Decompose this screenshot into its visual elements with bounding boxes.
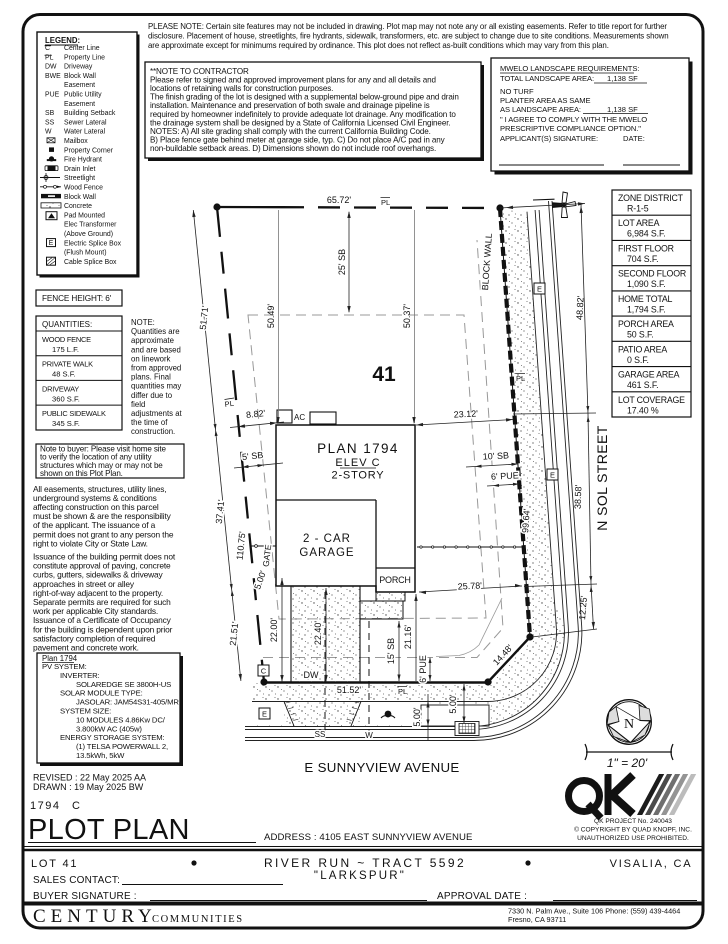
svg-text:5.00': 5.00' [448,694,458,714]
svg-text:" I AGREE TO COMPLY WITH THE M: " I AGREE TO COMPLY WITH THE MWELO [500,115,647,124]
svg-text:360 S.F.: 360 S.F. [52,394,80,403]
svg-text:25' SB: 25' SB [337,249,347,275]
svg-text:PATIO AREA: PATIO AREA [618,344,667,354]
svg-text:right to violate City or State: right to violate City or State Law. [33,538,148,548]
svg-text:8.82': 8.82' [246,408,266,420]
svg-text:50.37': 50.37' [402,304,412,329]
svg-text:Drain Inlet: Drain Inlet [64,166,95,173]
svg-text:N SOL STREET: N SOL STREET [594,425,610,530]
svg-text:ZONE DISTRICT: ZONE DISTRICT [618,193,684,203]
svg-text:PORCH AREA: PORCH AREA [618,319,674,329]
svg-text:Property Line: Property Line [64,54,105,61]
svg-text:704 S.F.: 704 S.F. [627,254,658,264]
svg-text:10' SB: 10' SB [482,450,509,461]
svg-text:PUBLIC SIDEWALK: PUBLIC SIDEWALK [42,409,106,418]
svg-text:W: W [365,731,373,740]
svg-text:QK PROJECT No. 240043: QK PROJECT No. 240043 [594,818,672,825]
svg-text:13.5kWh, 5kW: 13.5kWh, 5kW [76,751,125,760]
svg-text:Driveway: Driveway [64,64,93,71]
svg-text:AC: AC [294,413,305,422]
svg-text:© COPYRIGHT BY QUAD KNOPF, I: © COPYRIGHT BY QUAD KNOPF, INC. [574,826,692,834]
svg-text:Fire Hydrant: Fire Hydrant [64,157,102,164]
svg-text:PLOT PLAN: PLOT PLAN [28,814,190,846]
svg-text:plans. Final: plans. Final [131,373,171,382]
svg-text:Elec Transformer: Elec Transformer [64,222,117,229]
svg-text:FENCE HEIGHT: 6': FENCE HEIGHT: 6' [42,294,112,303]
svg-text:the time of: the time of [131,418,168,427]
svg-text:Electric Splice Box: Electric Splice Box [64,240,122,247]
svg-text:1" = 20': 1" = 20' [607,756,648,770]
svg-text:345 S.F.: 345 S.F. [52,419,80,428]
svg-text:APPLICANT(S) SIGNATURE:: APPLICANT(S) SIGNATURE: [500,134,598,143]
svg-text:41: 41 [372,363,396,386]
svg-text:INVERTER:: INVERTER: [60,671,100,680]
svg-text:0 S.F.: 0 S.F. [627,355,649,365]
svg-text:22.00': 22.00' [269,618,279,643]
svg-text:AS LANDSCAPE AREA:: AS LANDSCAPE AREA: [500,105,581,114]
svg-text:48.82': 48.82' [574,295,585,320]
svg-text:"LARKSPUR": "LARKSPUR" [314,870,406,882]
svg-text:SOLAR MODULE TYPE:: SOLAR MODULE TYPE: [60,689,143,698]
svg-text:N: N [624,717,634,732]
svg-text:E SUNNYVIEW AVENUE: E SUNNYVIEW AVENUE [304,760,459,775]
svg-text:Fresno, CA 93711: Fresno, CA 93711 [508,915,566,924]
svg-text:and are based: and are based [131,345,181,354]
svg-text:Pad Mounted: Pad Mounted [64,212,105,219]
svg-text:17.40 %: 17.40 % [627,405,659,415]
svg-text:Property Corner: Property Corner [64,147,114,154]
svg-text:APPROVAL DATE :: APPROVAL DATE : [437,891,527,902]
svg-text:10 MODULES 4.86Kw DC/: 10 MODULES 4.86Kw DC/ [76,715,166,724]
svg-text:BUYER SIGNATURE :: BUYER SIGNATURE : [33,891,137,902]
svg-text:Public Utility: Public Utility [64,92,102,99]
svg-text:SALES CONTACT:: SALES CONTACT: [33,875,120,886]
svg-text:disclosure. Placement of hous: disclosure. Placement of house, streetli… [148,32,669,41]
svg-text:HOME TOTAL: HOME TOTAL [618,294,673,304]
svg-text:field: field [131,400,145,409]
svg-text:(Flush Mount): (Flush Mount) [64,250,107,257]
svg-text:QUANTITIES:: QUANTITIES: [42,320,92,329]
svg-text:Water Lateral: Water Lateral [64,129,106,136]
svg-text:LOT 41: LOT 41 [31,858,78,870]
svg-text:PL: PL [224,399,234,409]
svg-text:NO TURF: NO TURF [500,87,534,96]
svg-text:SS: SS [45,119,55,126]
svg-text:Mailbox: Mailbox [64,138,88,145]
svg-text:21.16': 21.16' [403,625,413,650]
svg-text:1,138 SF: 1,138 SF [607,105,638,114]
svg-text:shown on this Plot Plan.: shown on this Plot Plan. [40,469,123,478]
svg-text:GARAGE AREA: GARAGE AREA [618,370,680,380]
svg-text:DW: DW [304,670,319,680]
svg-text:Easement: Easement [64,82,95,89]
svg-text:ELEV C: ELEV C [335,457,380,469]
svg-text:quantities may: quantities may [131,382,181,391]
svg-text:Center Line: Center Line [64,45,100,52]
svg-text:1,090 S.F.: 1,090 S.F. [627,279,666,289]
svg-text:PL: PL [381,198,390,207]
svg-text:3.800kW AC (405w): 3.800kW AC (405w) [76,724,142,733]
svg-text:BWE: BWE [45,73,61,80]
svg-text:GARAGE: GARAGE [299,547,354,559]
svg-text:DRIVEWAY: DRIVEWAY [42,384,79,393]
svg-text:WOOD FENCE: WOOD FENCE [42,335,91,344]
svg-text:SS: SS [315,730,326,739]
svg-text:Block Wall: Block Wall [64,194,96,201]
svg-text:Wood Fence: Wood Fence [64,185,103,192]
svg-text:6' PUE: 6' PUE [418,655,428,683]
svg-text:MWELO LANDSCAPE REQUIREMENTS:: MWELO LANDSCAPE REQUIREMENTS: [500,64,639,73]
svg-text:pavement and concrete work.: pavement and concrete work. [33,643,139,653]
svg-text:UNAUTHORIZED USE PROHIBITED.: UNAUTHORIZED USE PROHIBITED. [577,835,689,842]
svg-text:C: C [261,667,267,676]
svg-text:W: W [45,129,52,136]
svg-text:E: E [262,710,267,719]
svg-text:CENTURY: CENTURY [33,906,157,927]
svg-text:6' PUE: 6' PUE [491,470,519,481]
svg-text:differ due to: differ due to [131,391,173,400]
svg-text:PRIVATE WALK: PRIVATE WALK [42,360,93,369]
svg-text:51.52': 51.52' [337,685,362,695]
svg-text:23.12': 23.12' [453,408,478,419]
svg-text:E: E [537,285,542,294]
svg-text:50 S.F.: 50 S.F. [627,330,654,340]
svg-text:REVISED : 22 May 2025 AA: REVISED : 22 May 2025 AA [33,773,146,783]
svg-text:E: E [550,471,555,480]
svg-text:175 L.F.: 175 L.F. [52,345,79,354]
svg-text:12.25': 12.25' [577,595,589,620]
svg-text:adjustments at: adjustments at [131,409,183,418]
svg-text:Sewer Lateral: Sewer Lateral [64,119,107,126]
svg-text:99.64': 99.64' [520,508,532,533]
svg-text:PRESCRIPTIVE COMPLIANCE OPTION: PRESCRIPTIVE COMPLIANCE OPTION." [500,124,641,133]
svg-text:5.00': 5.00' [412,707,422,727]
svg-text:non-buildable setback areas.: non-buildable setback areas. D) Dimensio… [150,144,436,153]
svg-text:RIVER RUN ~ TRACT 5592: RIVER RUN ~ TRACT 5592 [264,856,466,870]
svg-text:PORCH: PORCH [379,575,411,585]
svg-text:PL: PL [516,374,525,383]
svg-text:PL: PL [398,687,407,696]
svg-text:VISALIA, CA: VISALIA, CA [610,858,693,870]
svg-text:Concrete: Concrete [64,203,92,210]
svg-text:25.78': 25.78' [457,580,482,591]
svg-text:R-1-5: R-1-5 [627,204,649,214]
svg-text:PLANTER AREA AS SAME: PLANTER AREA AS SAME [500,96,590,105]
svg-text:6,984 S.F.: 6,984 S.F. [627,229,666,239]
svg-text:Easement: Easement [64,101,95,108]
svg-text:DRAWN : 19 May 2025 BW: DRAWN : 19 May 2025 BW [33,782,144,792]
svg-text:48 S.F.: 48 S.F. [52,370,76,379]
svg-text:1,138 SF: 1,138 SF [607,74,638,83]
svg-text:SECOND FLOOR: SECOND FLOOR [618,269,686,279]
svg-text:SOLAREDGE SE 3800H-US: SOLAREDGE SE 3800H-US [76,680,171,689]
svg-text:on linework: on linework [131,354,171,363]
svg-text:2-STORY: 2-STORY [332,470,385,482]
svg-text:65.72': 65.72' [327,195,352,205]
svg-text:FIRST FLOOR: FIRST FLOOR [618,243,674,253]
svg-text:SB: SB [45,110,55,117]
svg-text:PV SYSTEM:: PV SYSTEM: [42,662,87,671]
svg-text:ENERGY STORAGE SYSTEM:: ENERGY STORAGE SYSTEM: [60,733,165,742]
svg-text:(Above Ground): (Above Ground) [64,231,113,238]
svg-text:C: C [72,800,80,812]
svg-text:PLEASE NOTE: Certain site fea: PLEASE NOTE: Certain site features may n… [148,22,667,31]
svg-text:Cable Splice Box: Cable Splice Box [64,259,117,266]
svg-text:ADDRESS : 4105 EAST SUNNYVIE: ADDRESS : 4105 EAST SUNNYVIEW AVENUE [264,832,473,843]
svg-text:JASOLAR: JAM54S31-405/MR: JASOLAR: JAM54S31-405/MR [76,698,179,707]
svg-text:TOTAL LANDSCAPE AREA:: TOTAL LANDSCAPE AREA: [500,74,594,83]
svg-text:LOT AREA: LOT AREA [618,218,660,228]
svg-text:1,794 S.F.: 1,794 S.F. [627,304,666,314]
svg-text:Quantities are: Quantities are [131,327,180,336]
svg-text:22.40': 22.40' [313,621,323,646]
svg-text:2 - CAR: 2 - CAR [303,533,351,545]
svg-text:are approximate except for min: are approximate except for minimums requ… [148,41,609,50]
svg-text:NOTE:: NOTE: [131,318,155,327]
svg-text:38.58': 38.58' [573,484,584,509]
svg-text:LEGEND:: LEGEND: [45,36,80,45]
svg-text:PLAN 1794: PLAN 1794 [317,441,399,456]
svg-text:50.49': 50.49' [266,304,276,329]
svg-text:1794: 1794 [30,800,60,812]
svg-text:LOT COVERAGE: LOT COVERAGE [618,395,685,405]
svg-text:Building Setback: Building Setback [64,110,116,117]
svg-text:COMMUNITIES: COMMUNITIES [152,914,244,925]
svg-text:E: E [49,240,54,247]
svg-text:Streetlight: Streetlight [64,175,95,182]
svg-text:15' SB: 15' SB [386,638,396,664]
svg-text:PUE: PUE [45,92,60,99]
svg-text:(1) TELSA POWERWALL 2,: (1) TELSA POWERWALL 2, [76,742,168,751]
svg-text:461 S.F.: 461 S.F. [627,380,658,390]
svg-text:DW: DW [45,64,57,71]
svg-text:from approved: from approved [131,364,181,373]
svg-text:SYSTEM SIZE:: SYSTEM SIZE: [60,707,111,716]
svg-text:Block Wall: Block Wall [64,73,96,80]
svg-text:approximate: approximate [131,336,174,345]
svg-text:DATE:: DATE: [623,134,645,143]
svg-text:construction.: construction. [131,427,175,436]
